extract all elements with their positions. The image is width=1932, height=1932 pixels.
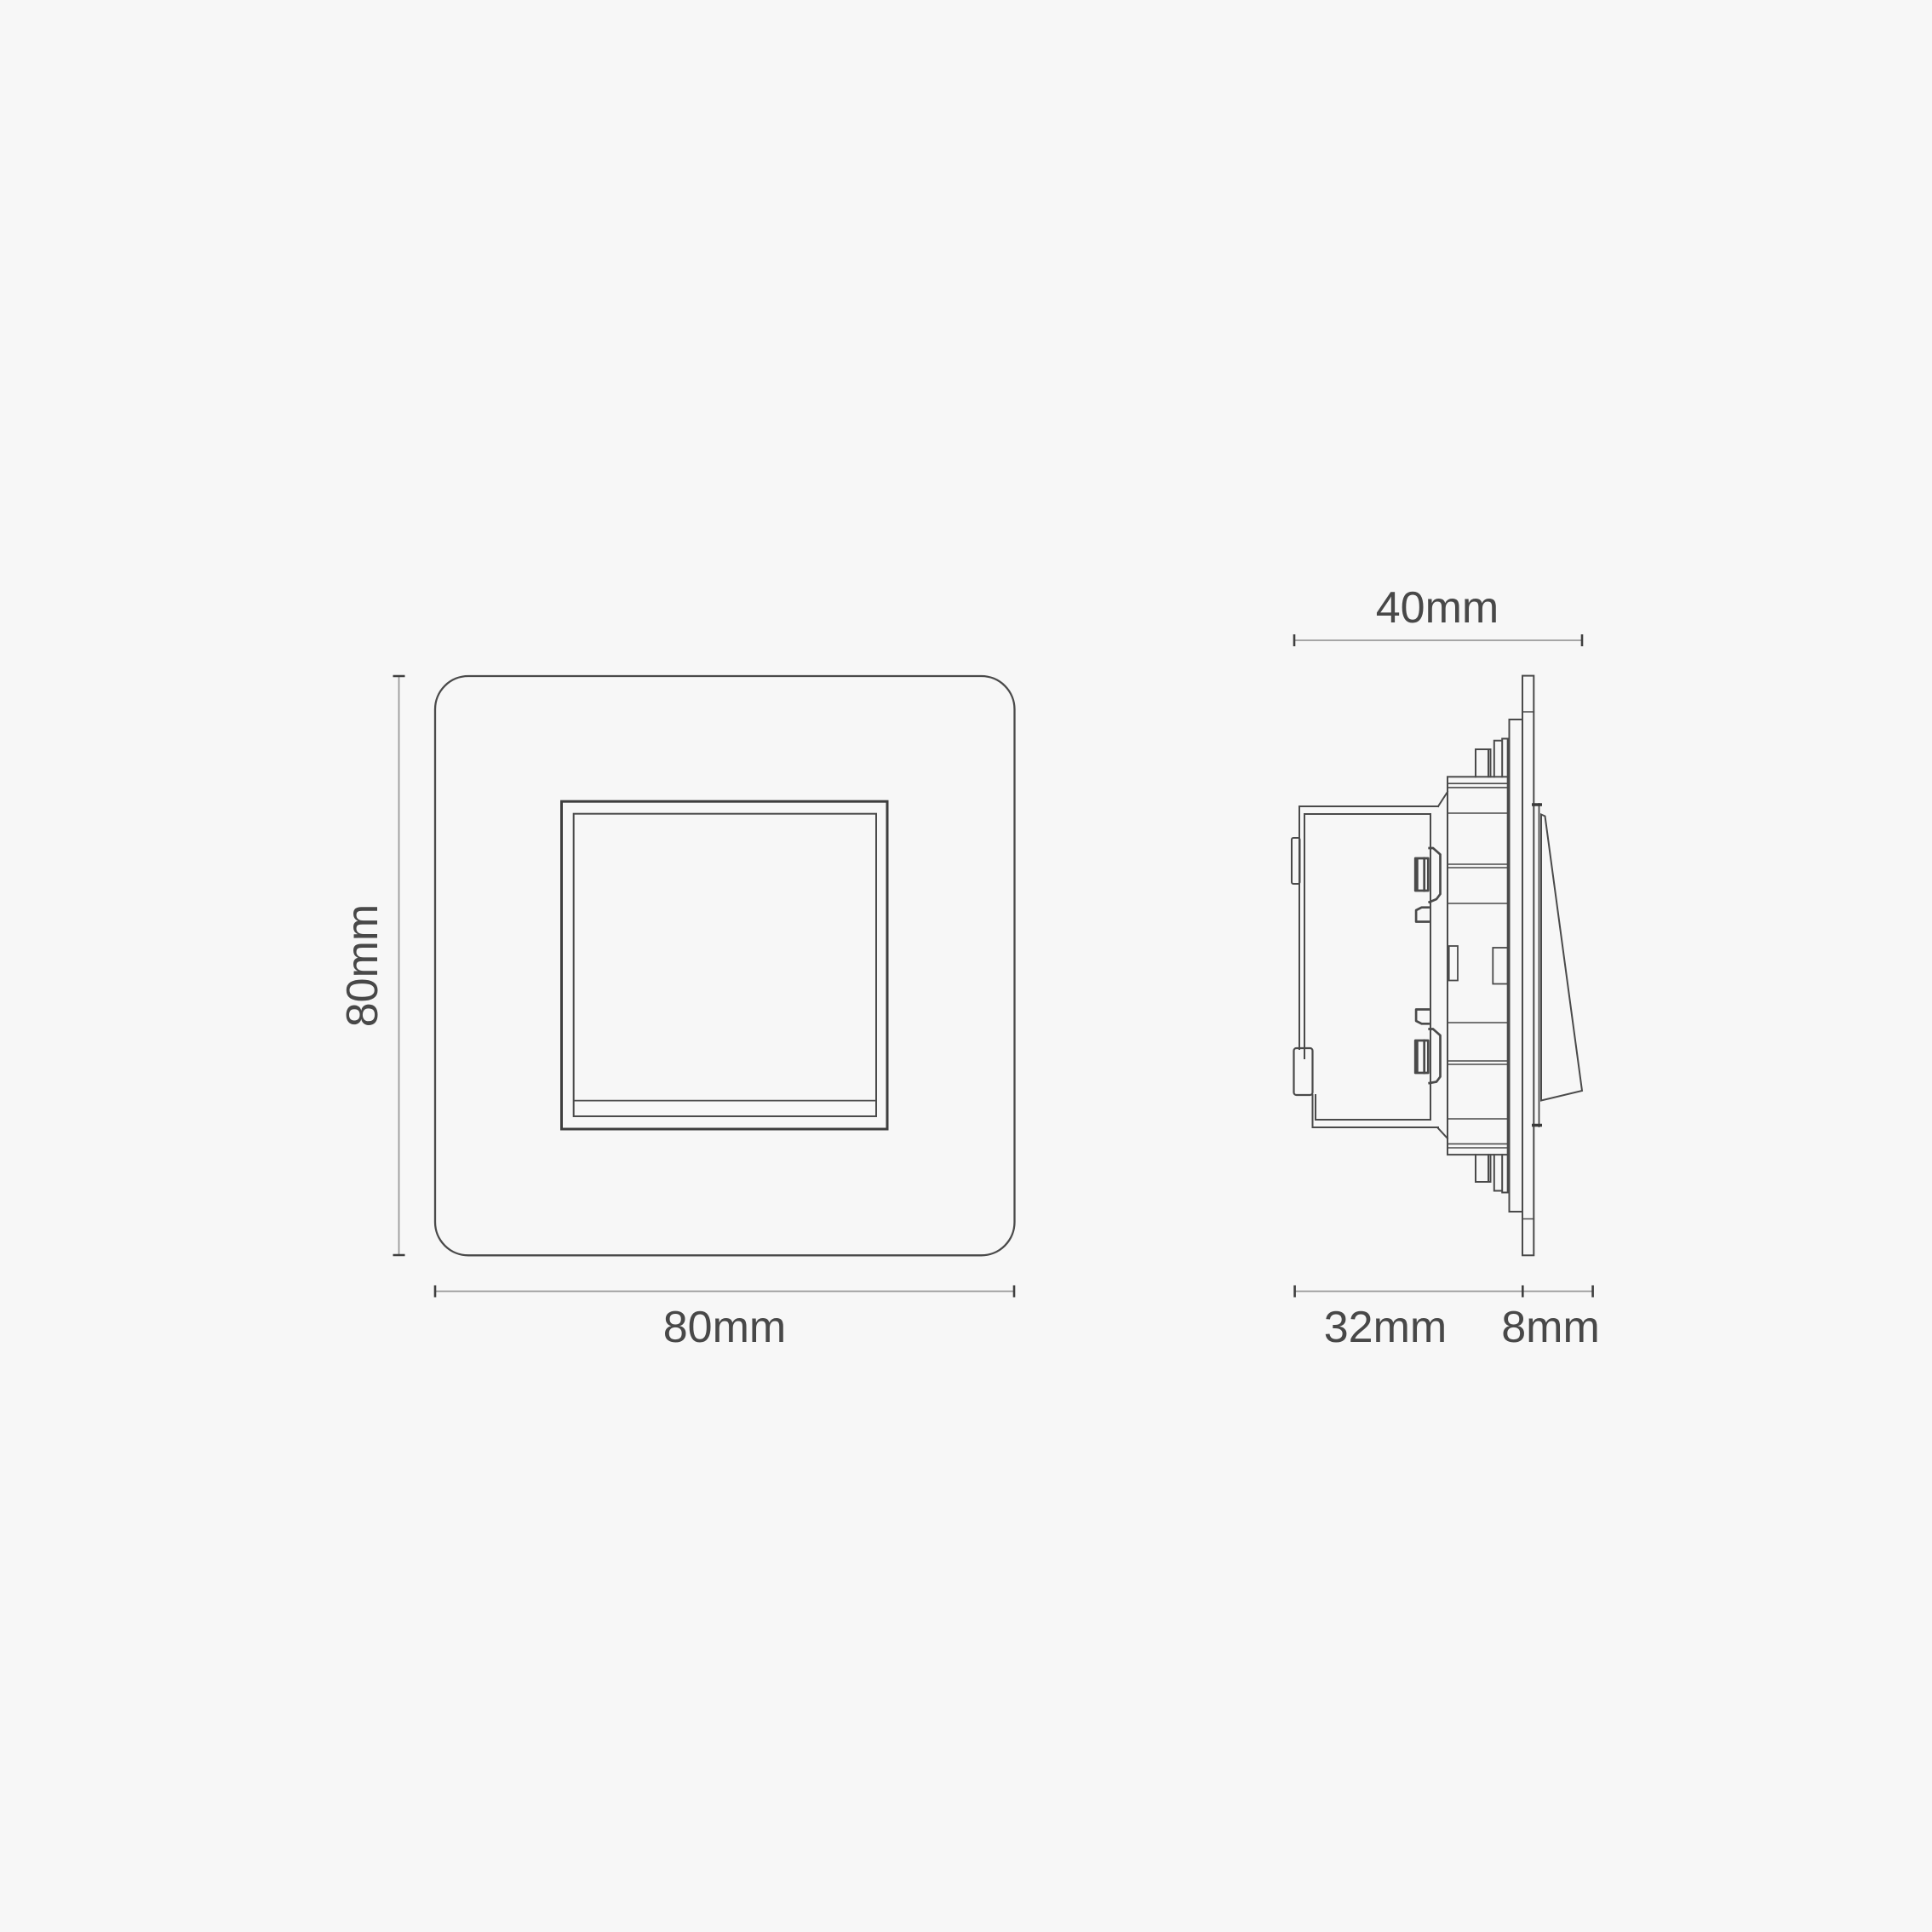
svg-text:32mm: 32mm [1324, 1303, 1447, 1352]
svg-text:8mm: 8mm [1501, 1303, 1600, 1352]
svg-text:40mm: 40mm [1376, 583, 1499, 633]
svg-text:80mm: 80mm [663, 1303, 786, 1352]
svg-text:80mm: 80mm [338, 904, 387, 1027]
